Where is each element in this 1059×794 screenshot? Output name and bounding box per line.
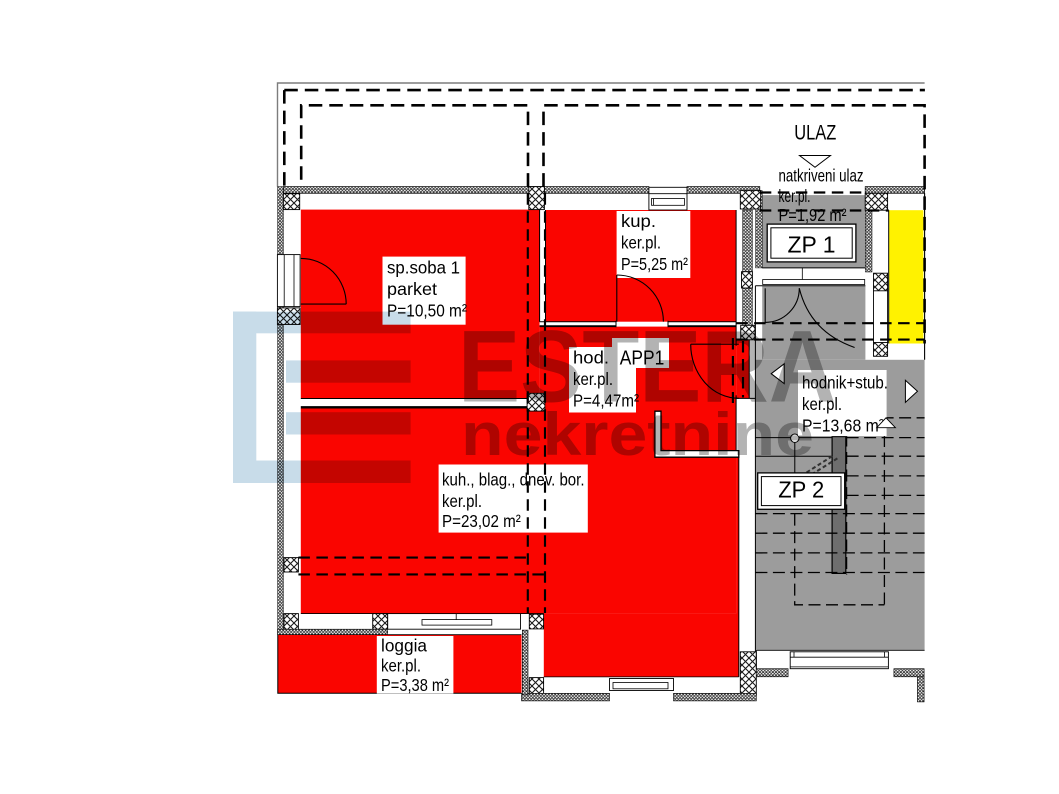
svg-text:nekretnine: nekretnine [461, 401, 814, 468]
svg-text:ker.pl.: ker.pl. [779, 186, 811, 206]
svg-text:P=23,02 m²: P=23,02 m² [442, 511, 521, 531]
svg-text:loggia: loggia [381, 636, 427, 656]
svg-text:kuh., blag., dnev. bor.: kuh., blag., dnev. bor. [442, 470, 585, 490]
svg-text:P=5,25 m²: P=5,25 m² [621, 254, 688, 274]
svg-text:ULAZ: ULAZ [794, 122, 836, 145]
svg-text:ZP 2: ZP 2 [778, 477, 824, 503]
svg-text:natkriveni ulaz: natkriveni ulaz [779, 166, 864, 186]
svg-text:ker.pl.: ker.pl. [381, 656, 421, 676]
svg-text:parket: parket [387, 279, 437, 299]
svg-text:ZP 1: ZP 1 [788, 232, 836, 258]
svg-text:kup.: kup. [621, 211, 656, 231]
svg-text:P=1,92 m²: P=1,92 m² [779, 205, 847, 225]
svg-text:P=3,38 m²: P=3,38 m² [381, 675, 449, 695]
svg-text:sp.soba 1: sp.soba 1 [387, 258, 460, 278]
svg-text:ker.pl.: ker.pl. [621, 233, 661, 253]
svg-text:ker.pl.: ker.pl. [442, 491, 482, 511]
